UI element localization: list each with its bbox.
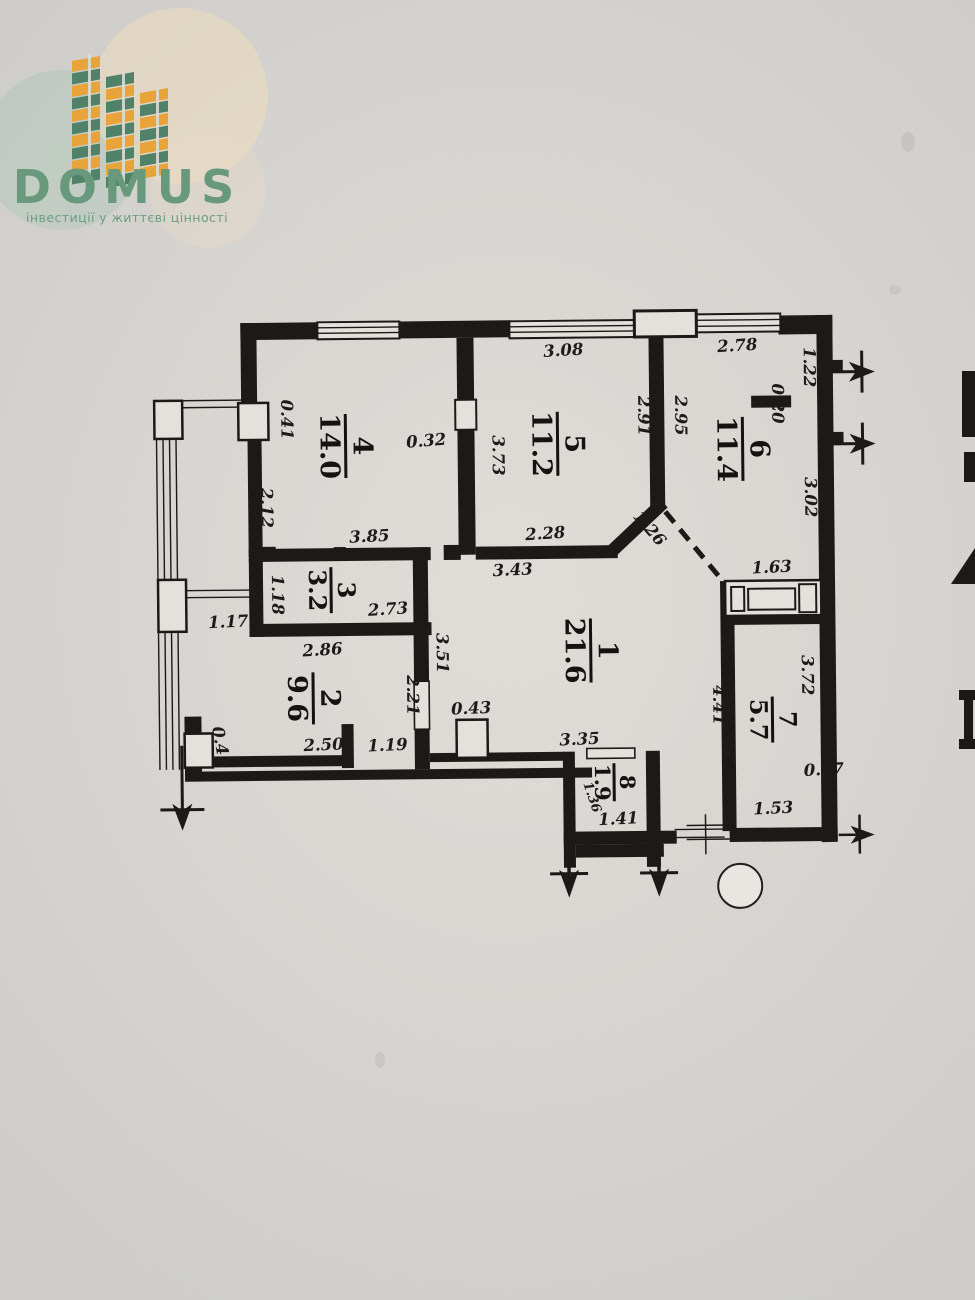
floor-plan-drawing: 3.08 2.78 0.32 3.85 2.28 3.43 1.63 1.17 … [153,308,880,914]
svg-text:14.0: 14.0 [313,413,345,479]
window-pier [634,310,696,337]
windows [317,309,780,340]
svg-text:9.6: 9.6 [281,675,312,722]
room-2-label: 2 9.6 [281,672,346,725]
svg-text:3: 3 [332,582,361,599]
dim-room8-right: 0.37 [803,759,845,780]
dim-room2-bottom: 2.50 [302,734,345,755]
dim-room5-bottom: 2.28 [524,523,567,545]
dim-room5-top: 3.08 [543,339,585,361]
svg-text:8: 8 [615,775,640,790]
dim-room4-door: 0.32 [405,430,447,452]
survey-circle-mark [718,864,762,908]
logo-tagline: інвестиції у життєві цінності [26,210,228,225]
wall-pier-room4 [238,403,268,440]
svg-text:5: 5 [558,434,589,453]
svg-text:11.2: 11.2 [525,411,557,477]
dim-corridor: 3.51 [433,633,452,673]
door-room8 [587,748,635,759]
dim-room5-left: 2.91 [634,395,653,436]
dim-room1-right: 4.41 [709,685,728,725]
threshold-line-top [675,829,725,830]
room-4-label: 4 14.0 [313,413,378,479]
threshold-line-bottom [675,837,725,838]
dim-room4-bottom: 3.85 [349,526,390,547]
dim-room45-wall: 3.73 [488,435,507,475]
svg-text:6: 6 [744,439,775,458]
floor-plan-scan: DOMUS інвестиції у життєві цінності [0,0,975,1300]
svg-text:5.7: 5.7 [744,699,773,741]
svg-text:1.9: 1.9 [590,764,615,801]
room-1-label: 1 21.6 [558,617,623,683]
dim-room6-top: 2.78 [716,335,759,357]
dim-room3-outer: 2.86 [301,639,344,661]
column-symbol [456,720,487,758]
svg-text:2: 2 [314,689,345,708]
dim-room5-right: 2.95 [671,394,690,435]
dim-room7-bottom: 1.53 [753,798,794,819]
window-room4 [317,321,399,339]
room-6-label: 6 11.4 [710,416,775,482]
balcony-pier-middle [158,580,187,632]
room-7-label: 7 5.7 [744,696,802,743]
logo-wordmark: DOMUS [13,160,242,214]
dim-room6-right: 3.02 [801,477,820,517]
dim-room4-left: 2.12 [257,487,276,528]
window-room5 [509,320,636,338]
dim-hall-passage: 1.17 [208,611,250,632]
dashed-opening-line [665,511,722,581]
dim-column: 0.43 [451,698,492,719]
dim-room2-right: 2.21 [403,674,422,715]
page-edge-text-fragments [951,371,975,749]
wardrobe-symbol [725,580,821,616]
dim-room4-balcony: 0.41 [277,399,296,439]
svg-text:3.2: 3.2 [303,569,332,611]
dim-room3-left: 1.18 [268,575,287,616]
dim-room7-left: 3.72 [798,655,817,695]
door-room4-room5 [455,400,476,430]
svg-text:21.6: 21.6 [558,618,590,684]
svg-text:7: 7 [773,711,802,728]
svg-text:4: 4 [346,436,377,455]
dim-room1-top: 3.43 [492,559,533,580]
dim-room8-bottom: 1.41 [598,808,639,829]
dim-room6-niche-depth: 0.20 [768,383,787,424]
dim-room1-bottom: 3.35 [559,729,600,750]
room-5-label: 5 11.2 [525,411,590,477]
room-8-label: 8 1.9 [590,763,640,802]
room-3-label: 3 3.2 [303,567,361,614]
dim-room3-inner: 2.73 [366,598,408,620]
right-arrow-upper [831,350,875,392]
balcony-pier-top [154,401,182,439]
dim-room6-niche-height: 1.22 [800,347,819,387]
svg-text:11.4: 11.4 [710,416,742,482]
svg-text:1: 1 [592,641,623,660]
window-room6 [695,313,780,332]
scanned-floor-plan-page: DOMUS інвестиції у життєві цінності [0,0,975,1300]
dim-wardrobe: 1.63 [751,557,792,578]
right-arrow-lower [831,422,875,464]
balcony-pier-bottom [185,733,213,767]
bottom-right-arrow [838,815,874,854]
dim-room2-door: 1.19 [367,735,409,756]
